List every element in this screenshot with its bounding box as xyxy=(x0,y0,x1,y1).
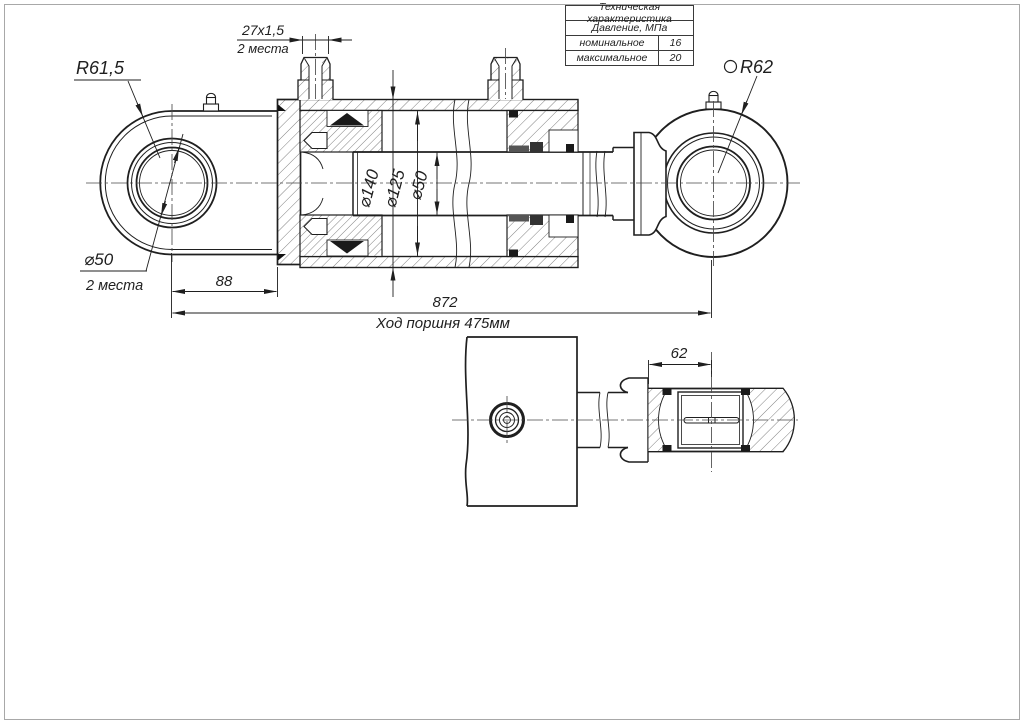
label-cylinder-od: ⌀140 xyxy=(355,167,383,210)
spec-subheader-text: Давление, МПа xyxy=(592,22,668,34)
gland-wiper xyxy=(509,146,529,153)
gland-wiper xyxy=(509,215,529,222)
spec-label: номинальное xyxy=(566,37,658,49)
right-eye xyxy=(613,91,788,257)
label-dim-872: 872 xyxy=(432,294,458,311)
break-line xyxy=(604,151,606,217)
rod-gland xyxy=(507,111,578,257)
bottom-view xyxy=(466,337,795,506)
break-line xyxy=(596,151,598,217)
barrel-top-wall xyxy=(300,100,578,111)
label-dim-88: 88 xyxy=(216,273,233,290)
label-thread: 27x1,5 xyxy=(241,22,284,38)
rear-cap xyxy=(278,100,301,265)
spec-table-header: Техническая характеристика xyxy=(566,6,693,20)
spec-value: 20 xyxy=(658,51,692,65)
dim-eye-width xyxy=(649,360,712,384)
spec-row-nominal: номинальное 16 xyxy=(566,35,693,50)
gland-seal xyxy=(509,111,518,118)
bushing-seal xyxy=(663,445,672,452)
spec-row-maximal: максимальное 20 xyxy=(566,50,693,65)
break-line xyxy=(467,100,471,268)
drawing-sheet: R61,5 R62 27x1,5 2 места ⌀140 ⌀125 ⌀50 ⌀… xyxy=(0,0,1024,724)
main-view xyxy=(100,58,787,268)
label-eye-bore-places: 2 места xyxy=(85,278,143,294)
cylinder-drawing: R61,5 R62 27x1,5 2 места ⌀140 ⌀125 ⌀50 ⌀… xyxy=(0,0,1024,724)
spec-label: максимальное xyxy=(566,52,658,64)
left-eye xyxy=(100,93,278,254)
barrel-bottom-wall xyxy=(300,257,578,268)
grease-fitting-icon xyxy=(204,93,219,111)
spec-value: 16 xyxy=(658,36,692,50)
label-stroke-note: Ход поршня 475мм xyxy=(375,315,510,332)
bushing-seal xyxy=(663,389,672,396)
gland-seal xyxy=(530,215,543,225)
body-outline xyxy=(466,337,577,506)
gland-seal xyxy=(530,142,543,152)
rod-eye-adapter xyxy=(634,133,666,236)
bushing-seal xyxy=(741,445,750,452)
gland-seal xyxy=(566,215,574,223)
break-line xyxy=(453,100,457,268)
gland-seal xyxy=(509,250,518,257)
label-cylinder-bore: ⌀125 xyxy=(381,167,409,210)
label-right-eye-radius: R62 xyxy=(740,57,773,77)
label-eye-bore: ⌀50 xyxy=(84,250,114,269)
label-thread-places: 2 места xyxy=(236,41,288,56)
gland-seal xyxy=(566,144,574,152)
label-rod-diameter: ⌀50 xyxy=(406,169,432,203)
label-dim-62: 62 xyxy=(671,345,688,362)
sphere-symbol-icon xyxy=(725,61,737,73)
spec-table: Техническая характеристика Давление, МПа… xyxy=(565,5,694,66)
bushing-seal xyxy=(741,389,750,396)
label-left-eye-radius: R61,5 xyxy=(76,58,125,78)
